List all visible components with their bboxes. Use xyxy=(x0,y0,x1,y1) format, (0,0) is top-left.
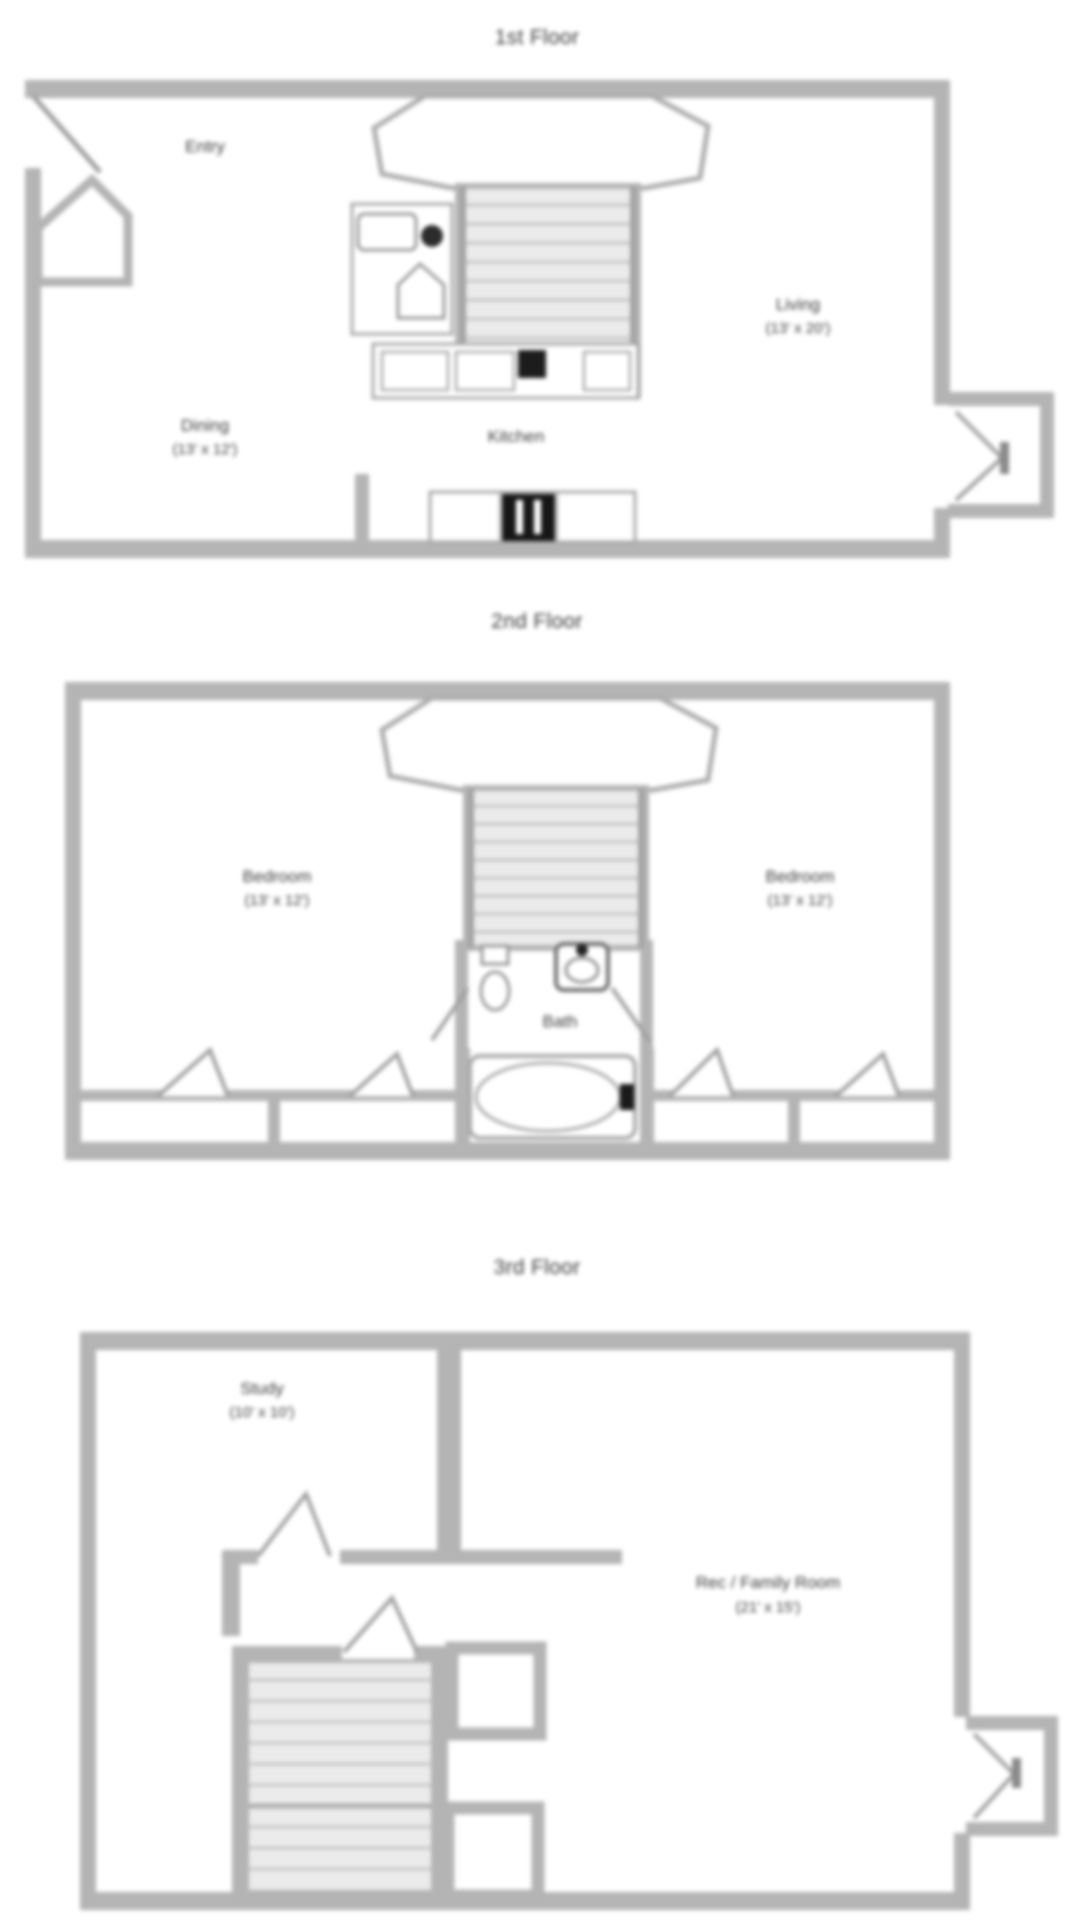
second-floor-plan: 2nd Floor xyxy=(65,610,950,1160)
bedroom-left-dims: (13' x 12') xyxy=(245,892,310,909)
bath-sink-faucet xyxy=(576,944,588,956)
dining-dims: (13' x 12') xyxy=(173,441,238,458)
study-dims: (10' x 10') xyxy=(230,1404,295,1421)
study-label: Study xyxy=(240,1379,284,1398)
bathtub xyxy=(476,1063,620,1131)
hall-door-swing xyxy=(258,1494,330,1556)
toilet-tank xyxy=(482,946,508,964)
stair-hood-first-floor xyxy=(374,96,708,188)
sink-faucet xyxy=(421,225,443,247)
stair-door-swing xyxy=(344,1598,417,1652)
stair-landing-lower xyxy=(448,1808,538,1896)
dining-label: Dining xyxy=(181,416,229,435)
bath-label: Bath xyxy=(543,1012,578,1031)
second-floor-title: 2nd Floor xyxy=(491,610,582,633)
cooktop xyxy=(518,350,546,378)
tub-faucet xyxy=(620,1084,634,1110)
living-dims: (13' x 20') xyxy=(766,320,831,337)
side-entry-bay-first-floor xyxy=(948,392,1054,518)
floor-plan-page: 1st Floor xyxy=(0,0,1075,1920)
entry-label: Entry xyxy=(185,137,225,156)
stair-landing-upper xyxy=(452,1648,540,1734)
kitchen-label: Kitchen xyxy=(488,427,545,446)
third-floor-title: 3rd Floor xyxy=(494,1256,581,1279)
living-label: Living xyxy=(776,295,820,314)
side-entry-bay-third-floor xyxy=(966,1716,1058,1836)
staircase-second-floor xyxy=(466,788,646,948)
rec-family-room-label: Rec / Family Room xyxy=(696,1573,841,1592)
blur-layer: 1st Floor xyxy=(0,0,1075,1920)
first-floor-plan: 1st Floor xyxy=(25,26,1054,558)
toilet-second-floor xyxy=(481,972,509,1010)
first-floor-title: 1st Floor xyxy=(495,26,579,49)
third-floor-plan: 3rd Floor xyxy=(80,1256,1058,1910)
bedroom-left-label: Bedroom xyxy=(243,867,312,886)
floor-plans-drawing: 1st Floor xyxy=(0,0,1075,1920)
stair-hood-second-floor xyxy=(382,698,716,790)
bottom-counter xyxy=(430,492,635,542)
staircase-third-floor xyxy=(247,1661,433,1892)
entry-door-swing xyxy=(33,96,100,172)
entry-closet xyxy=(38,180,128,282)
rec-family-room-dims: (21' x 15') xyxy=(736,1599,801,1616)
kitchen-sink xyxy=(358,214,416,250)
bedroom-right-label: Bedroom xyxy=(766,867,835,886)
bedroom-right-dims: (13' x 12') xyxy=(768,892,833,909)
stove xyxy=(502,494,555,541)
